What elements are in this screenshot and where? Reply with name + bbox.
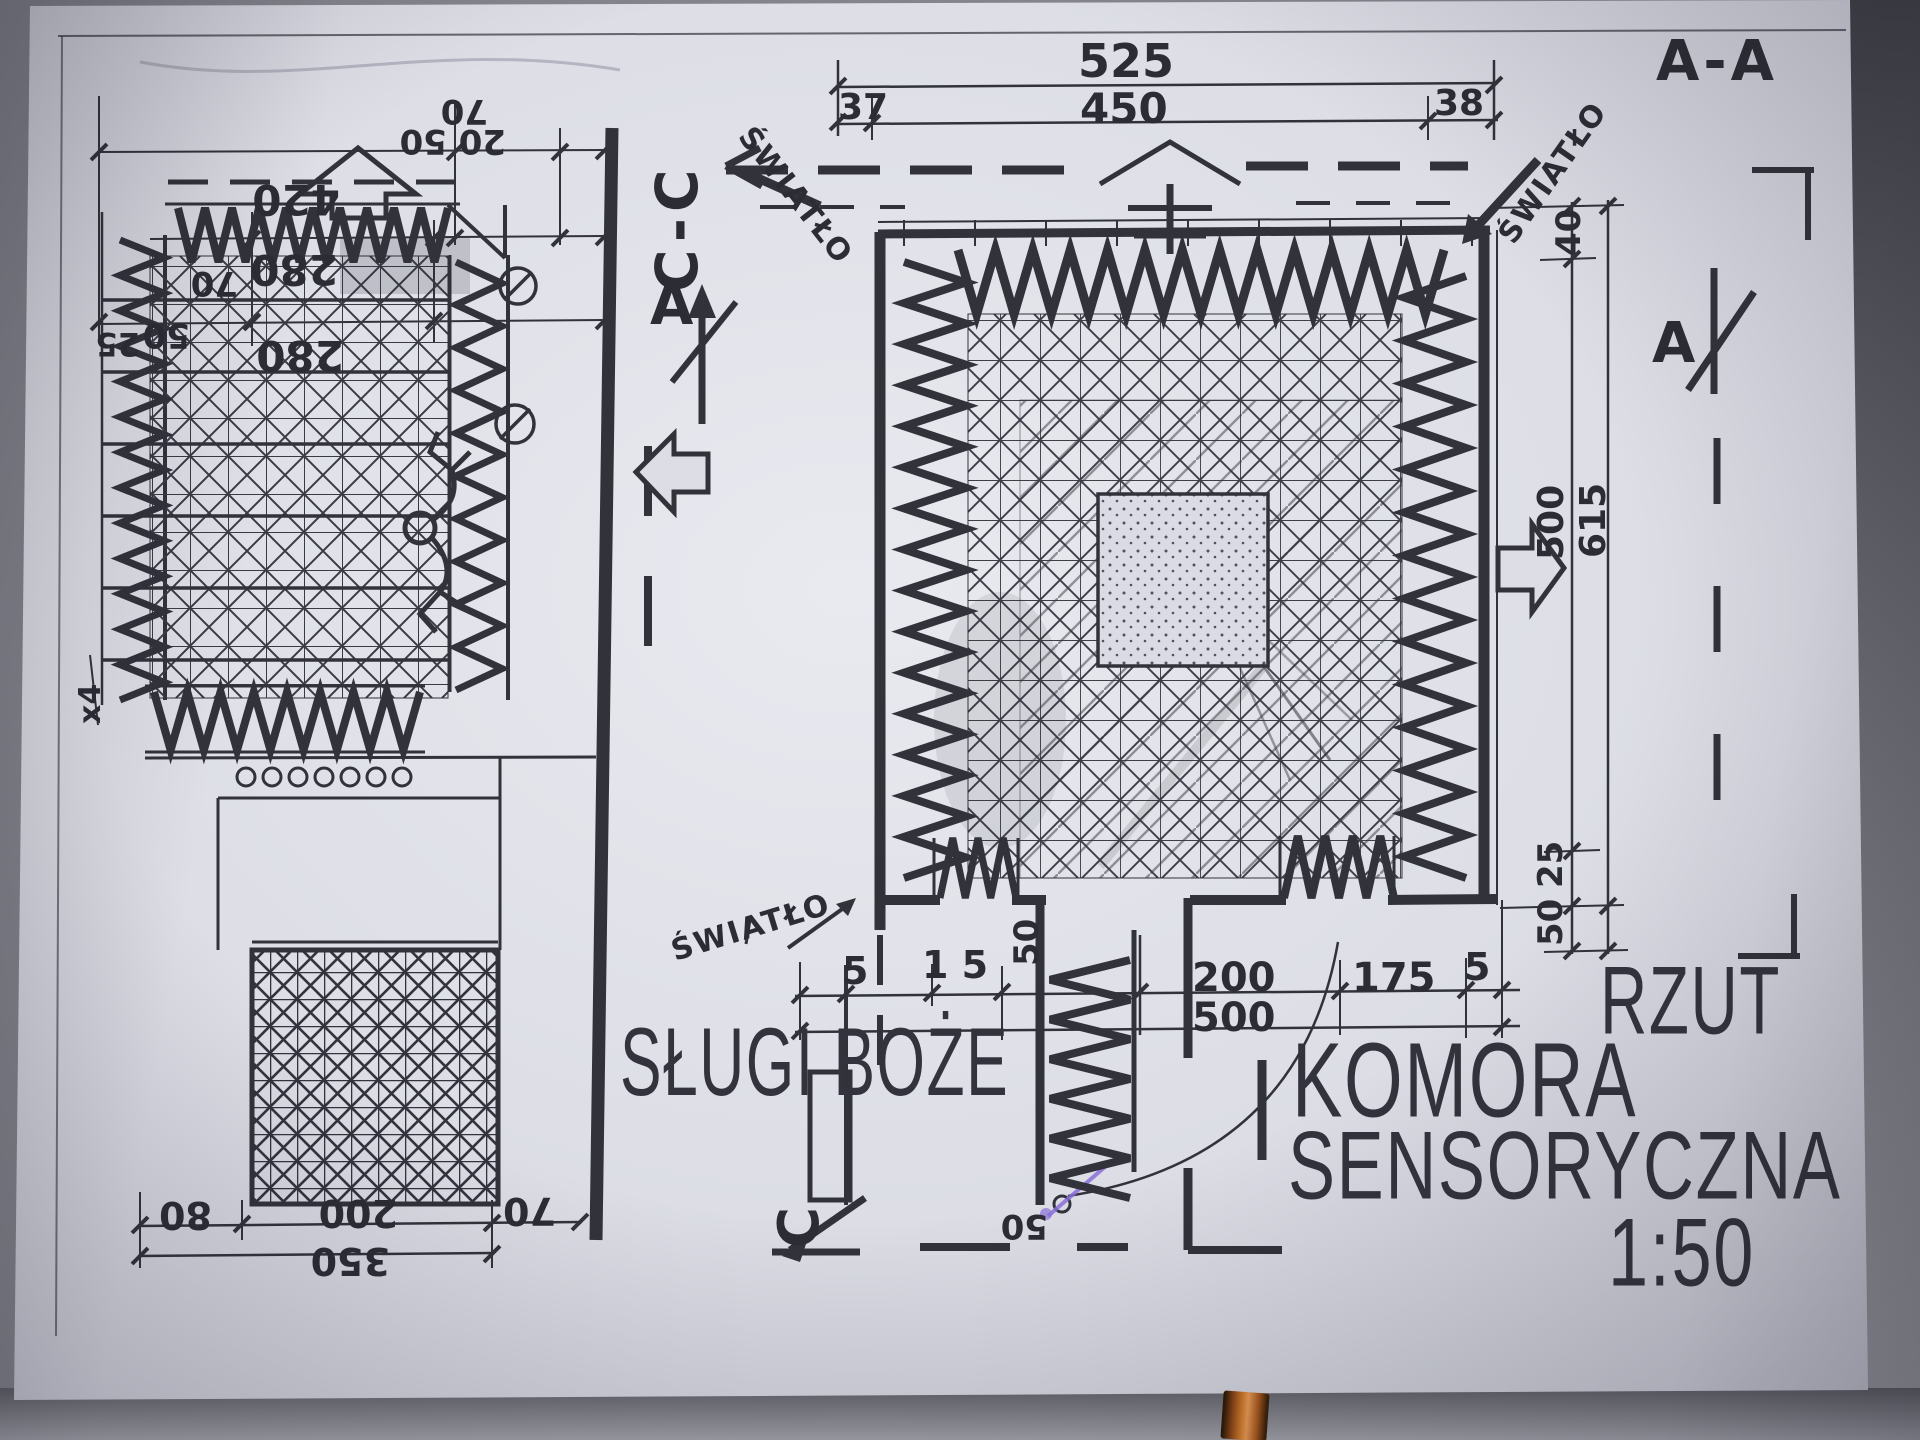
- dim-1-5: 1 5: [922, 946, 988, 984]
- dim-70-bottom: 70: [503, 1192, 556, 1230]
- dim-525: 525: [1078, 38, 1174, 84]
- dim-5-right: 5: [1464, 948, 1490, 986]
- dim-420: 420: [252, 178, 340, 220]
- dim-25-right: 25: [1534, 841, 1568, 888]
- section-marker-c-bottom: C: [772, 1207, 828, 1248]
- dim-500-bottom: 500: [1192, 998, 1276, 1038]
- dim-450: 450: [1080, 88, 1168, 130]
- dim-280-low: 280: [256, 334, 344, 376]
- light-label-bottom: ŚWIATŁO: [668, 890, 834, 967]
- light-label-top-left: ŚWIATŁO: [732, 122, 857, 270]
- dim-70-left: 70: [191, 266, 238, 300]
- section-marker-a-left: A: [650, 278, 693, 334]
- dim-80: 80: [159, 1196, 212, 1234]
- dim-350: 350: [311, 1242, 390, 1280]
- caption-scale: 1:50: [1608, 1204, 1755, 1301]
- caption-slugi-boze: SŁUGI BOŻE: [620, 1015, 1009, 1112]
- dim-38: 38: [1434, 86, 1484, 122]
- dim-50-right: 50: [1534, 899, 1568, 946]
- dim-200-bottom: 200: [319, 1194, 398, 1232]
- dim-280-mid: 280: [250, 248, 338, 290]
- note-x4: x4: [76, 684, 106, 724]
- caption-rzut: RZUT: [1600, 952, 1781, 1049]
- dim-50-door: 50: [1001, 1209, 1048, 1243]
- photo-of-hand-drawn-blueprint: SŁUGI BOŻE KOMORA SENSORYCZNA 1:50 RZUT …: [0, 0, 1920, 1440]
- dim-20-50: 20 50: [400, 124, 506, 158]
- section-label-aa: A-A: [1656, 34, 1778, 90]
- text-labels-layer: SŁUGI BOŻE KOMORA SENSORYCZNA 1:50 RZUT …: [0, 0, 1920, 1440]
- dim-5-left: 5: [842, 952, 868, 990]
- dim-50-left: 50: [143, 318, 190, 352]
- dim-40: 40: [1552, 209, 1586, 256]
- dim-50-corridor: 50: [1010, 919, 1044, 966]
- dim-175: 175: [1352, 958, 1436, 998]
- dim-500-right: 500: [1534, 485, 1570, 560]
- dim-615: 615: [1576, 483, 1612, 558]
- caption-sensoryczna: SENSORYCZNA: [1288, 1118, 1842, 1214]
- dim-37: 37: [838, 90, 888, 126]
- section-marker-a-right: A: [1652, 316, 1695, 372]
- dim-25-left: 25: [95, 328, 140, 360]
- dim-200: 200: [1192, 958, 1276, 998]
